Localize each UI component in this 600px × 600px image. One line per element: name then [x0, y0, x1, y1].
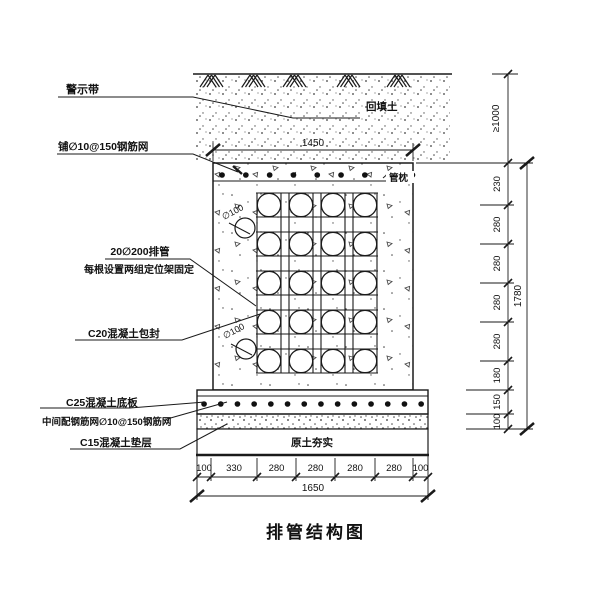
cushion-layer — [197, 414, 428, 429]
pipe-count-label: 20∅200排管 — [110, 245, 170, 258]
drawing-canvas: 回填土 — [0, 0, 600, 600]
pipe-fixing-label: 每根设置两组定位架固定 — [84, 263, 194, 276]
warning-tape-label: 警示带 — [65, 82, 99, 96]
dim-bottom-chain-values: 100 330 280 280 280 280 100 — [196, 463, 428, 474]
c20-label: C20混凝土包封 — [88, 327, 160, 340]
slab-outline — [197, 390, 428, 414]
dim-value: 280 — [269, 463, 285, 474]
dim-top-width-value: 1450 — [302, 138, 325, 149]
dim-bottom-total: 1650 — [190, 483, 435, 502]
dim-value: 100 — [492, 414, 503, 430]
dim-value: 230 — [492, 176, 503, 192]
dim-bottom-total-value: 1650 — [302, 483, 325, 494]
mid-mesh-label: 中间配钢筋网∅10@150钢筋网 — [42, 416, 171, 428]
dim-value: 180 — [492, 368, 503, 384]
dim-right-total-value: 1780 — [513, 284, 524, 307]
compacted-soil-label: 原土夯实 — [291, 436, 333, 449]
base-slab — [197, 390, 428, 414]
c15-label: C15混凝土垫层 — [80, 436, 152, 449]
dim-value: 330 — [226, 463, 242, 474]
backfill-label: 回填土 — [366, 100, 398, 113]
c25-label: C25混凝土底板 — [66, 396, 138, 409]
backfill-texture — [195, 76, 450, 162]
pipe-structure-drawing: 回填土 — [0, 0, 600, 600]
pillow-label: 管枕 — [389, 172, 409, 184]
dim-cover-depth-value: ≥1000 — [491, 104, 502, 132]
dim-value: 280 — [492, 256, 503, 272]
dim-value: 280 — [492, 295, 503, 311]
dim-value: 100 — [413, 463, 429, 474]
dim-cover-depth: ≥1000 — [491, 70, 518, 163]
dim-right-total: 1780 — [513, 157, 534, 435]
dim-value: 150 — [492, 394, 503, 410]
dim-value: 280 — [308, 463, 324, 474]
dim-right-chain-values: 230 280 280 280 280 180 150 100 — [492, 176, 503, 429]
dim-value: 100 — [196, 463, 212, 474]
dim-value: 280 — [347, 463, 363, 474]
dim-value: 280 — [386, 463, 402, 474]
compacted-soil-band: 原土夯实 — [196, 429, 429, 455]
dim-value: 280 — [492, 334, 503, 350]
top-mesh-label: 铺∅10@150钢筋网 — [58, 140, 148, 153]
drawing-title: 排管结构图 — [266, 522, 366, 542]
dim-value: 280 — [492, 217, 503, 233]
